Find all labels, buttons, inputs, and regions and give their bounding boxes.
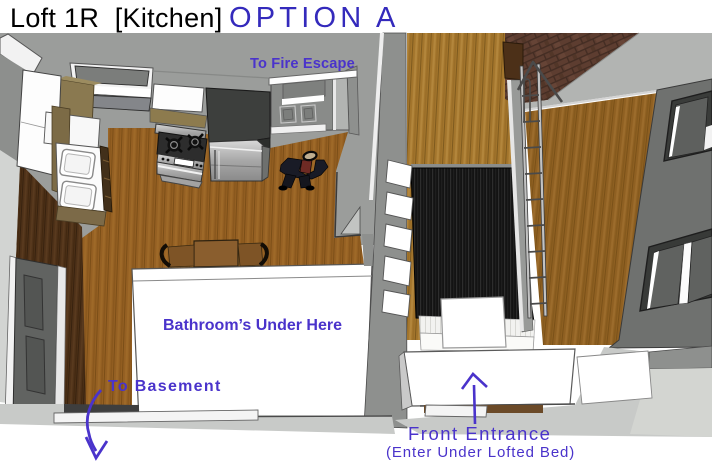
svg-text:(Enter Under Lofted Bed): (Enter Under Lofted Bed) (386, 444, 575, 461)
svg-text:To Fire Escape: To Fire Escape (250, 56, 355, 72)
svg-text:To Basement: To Basement (108, 378, 222, 395)
svg-text:Front Entrance: Front Entrance (408, 423, 551, 444)
svg-text:Loft 1R [Kitchen]: Loft 1R [Kitchen] (10, 3, 223, 33)
svg-text:OPTION A: OPTION A (229, 2, 400, 34)
svg-text:Bathroom’s Under Here: Bathroom’s Under Here (163, 317, 342, 334)
